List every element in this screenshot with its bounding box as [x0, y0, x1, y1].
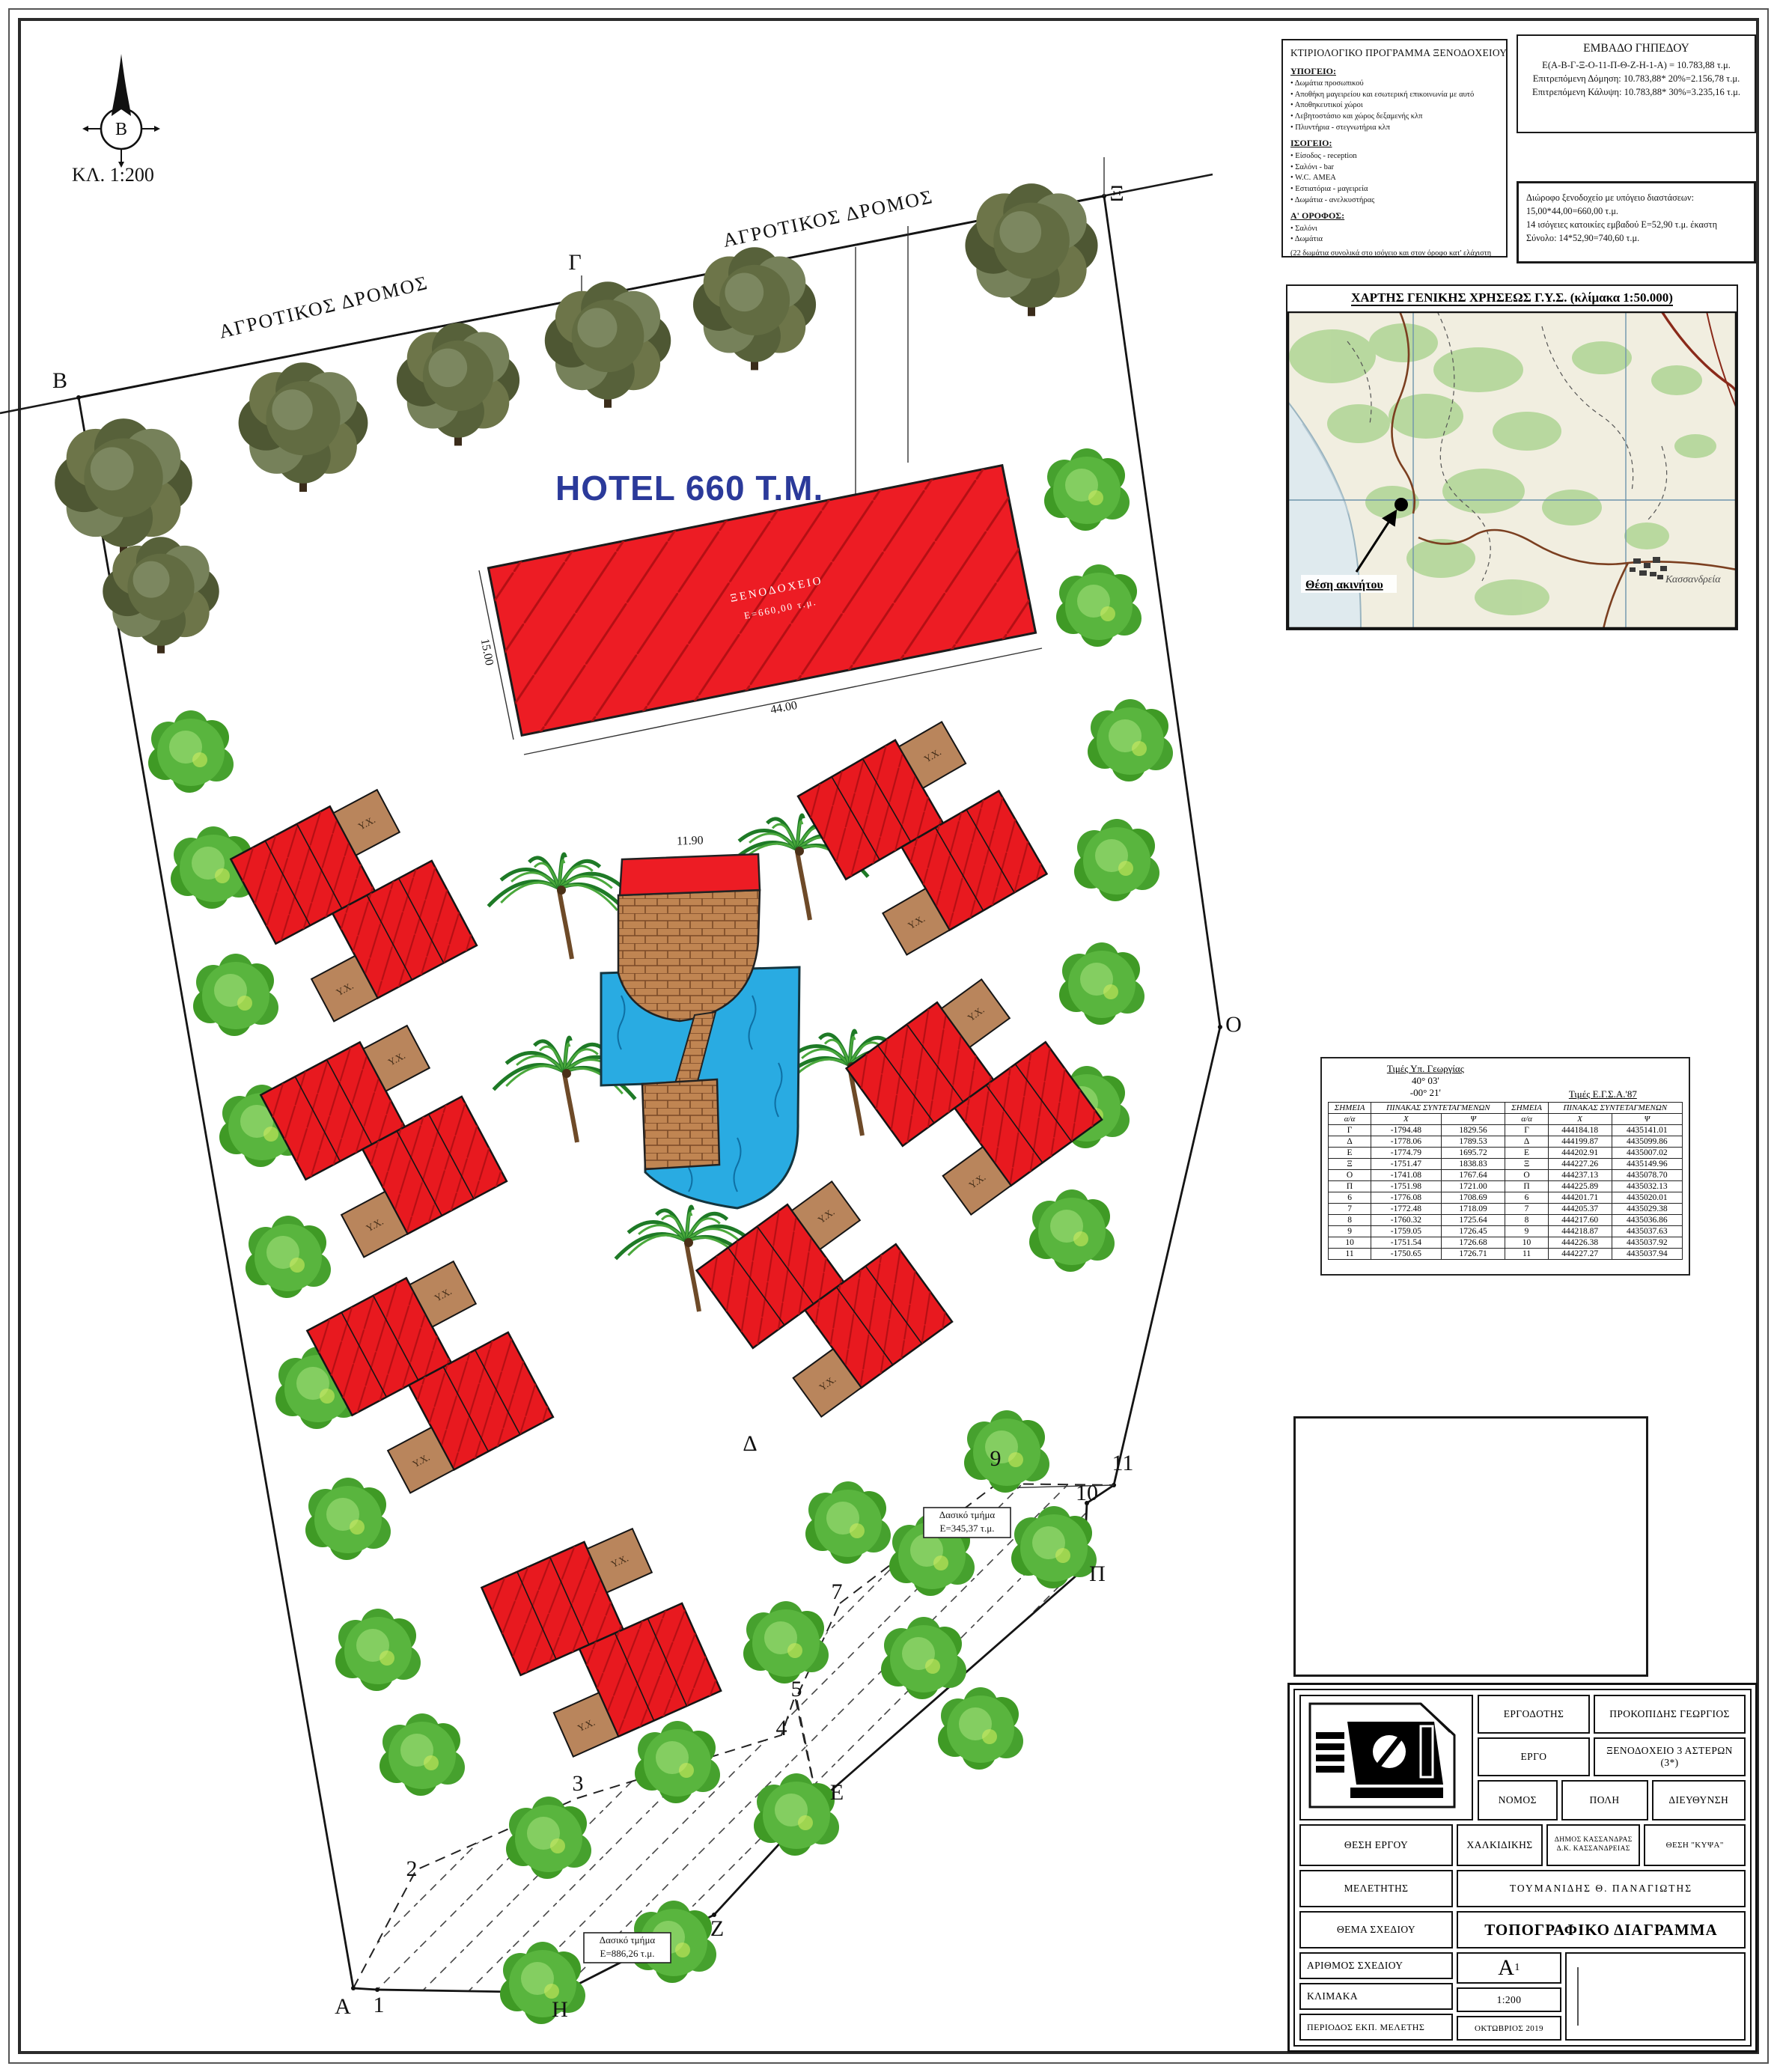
signature-box	[1565, 1952, 1746, 2041]
map-site-label: Θέση ακινήτου	[1305, 579, 1383, 591]
build-line: Σύνολο: 14*52,90=740,60 τ.μ.	[1526, 233, 1746, 244]
address-header: ΔΙΕΥΘΥΝΣΗ	[1652, 1780, 1746, 1820]
bungalow-pair: Υ.Χ.Υ.Χ.	[307, 1248, 553, 1500]
program-item: • Είσοδος - reception	[1290, 151, 1499, 162]
coords-header-left: Τιμές Υπ. Γεωργίας	[1328, 1063, 1523, 1075]
bush-icon	[743, 1601, 829, 1683]
boundary-point-label: 4	[776, 1716, 787, 1740]
subject-value: ΤΟΠΟΓΡΑΦΙΚΟ ΔΙΑΓΡΑΜΜΑ	[1457, 1911, 1746, 1948]
period-value: ΟΚΤΩΒΡΙΟΣ 2019	[1457, 2016, 1561, 2041]
coord-row: Ξ-1751.471838.83Ξ444227.264435149.96	[1329, 1159, 1683, 1170]
building-summary-box: Διώροφο ξενοδοχείο με υπόγειο διαστάσεων…	[1517, 181, 1756, 263]
col-y: Ψ	[1441, 1114, 1505, 1125]
area-line: Επιτρεπόμενη Κάλυψη: 10.783,88* 30%=3.23…	[1523, 87, 1750, 98]
boundary-point-label: 10	[1076, 1481, 1098, 1505]
pool-deck-square	[642, 1079, 719, 1169]
bush-icon	[1029, 1189, 1115, 1272]
program-item: • Αποθηκευτικοί χώροι	[1290, 100, 1499, 111]
program-note: (22 δωμάτια συνολικά στο ισόγειο και στο…	[1290, 249, 1499, 258]
col-table: ΠΙΝΑΚΑΣ ΣΥΝΤΕΤΑΓΜΕΝΩΝ	[1548, 1103, 1682, 1114]
coord-row: Γ-1794.481829.56Γ444184.184435141.01	[1329, 1125, 1683, 1136]
bush-icon	[805, 1481, 891, 1564]
boundary-point-label: 7	[832, 1579, 843, 1604]
location-address: ΘΕΣΗ "ΚΥΨΑ"	[1644, 1824, 1746, 1866]
tree-icon	[545, 281, 671, 407]
col-x: X	[1548, 1114, 1612, 1125]
location-label: ΘΕΣΗ ΕΡΓΟΥ	[1299, 1824, 1453, 1866]
area-line: Ε(Α-Β-Γ-Ξ-Ο-11-Π-Θ-Ζ-Η-1-Α) = 10.783,88 …	[1523, 60, 1750, 71]
map-town-label: Κασσανδρεία	[1665, 574, 1721, 585]
boundary-point-label: Γ	[568, 250, 581, 275]
site-location-dot	[1395, 498, 1408, 511]
bush-icon	[1056, 564, 1142, 647]
bush-icon	[148, 710, 234, 793]
period-label: ΠΕΡΙΟΔΟΣ ΕΚΠ. ΜΕΛΕΤΗΣ	[1299, 2014, 1453, 2041]
program-item: • Δωμάτια	[1290, 234, 1499, 245]
project-label: ΕΡΓΟ	[1478, 1737, 1590, 1776]
program-item: • Δωμάτια - ανελκυστήρας	[1290, 195, 1499, 206]
program-title: ΚΤΙΡΙΟΛΟΓΙΚΟ ΠΡΟΓΡΑΜΜΑ ΞΕΝΟΔΟΧΕΙΟΥ	[1290, 46, 1499, 60]
employer-value: ΠΡΟΚΟΠΙΔΗΣ ΓΕΩΡΓΙΟΣ	[1594, 1695, 1746, 1734]
map-title: ΧΑΡΤΗΣ ΓΕΝΙΚΗΣ ΧΡΗΣΕΩΣ Γ.Υ.Σ. (κλίμακα 1…	[1287, 286, 1737, 311]
col-aa: α/α	[1505, 1114, 1548, 1125]
plot-area-box: ΕΜΒΑΔΟ ΓΗΠΕΔΟΥ Ε(Α-Β-Γ-Ξ-Ο-11-Π-Θ-Ζ-Η-1-…	[1517, 34, 1756, 133]
coord-row: 9-1759.051726.459444218.874435037.63	[1329, 1226, 1683, 1237]
program-heading: Α' ΟΡΟΦΟΣ:	[1290, 210, 1499, 222]
program-item: • Σαλόνι	[1290, 224, 1499, 234]
coord-row: 8-1760.321725.648444217.604435036.86	[1329, 1215, 1683, 1226]
boundary-point-label: Β	[52, 368, 67, 393]
tree-icon	[239, 362, 368, 492]
program-list-floor: • Σαλόνι• Δωμάτια	[1290, 224, 1499, 245]
topo-map: Κασσανδρεία Θέση ακινήτου	[1287, 311, 1737, 629]
plan-scale-label: ΚΛ. 1:200	[72, 164, 154, 186]
program-item: • W.C. ΑΜΕΑ	[1290, 173, 1499, 183]
coordinates-table-box: Τιμές Υπ. Γεωργίας 40° 03' -00° 21' Τιμέ…	[1320, 1057, 1690, 1276]
svg-text:Ε=886,26 τ.μ.: Ε=886,26 τ.μ.	[600, 1948, 655, 1959]
program-item: • Δωμάτια προσωπικού	[1290, 79, 1499, 89]
drawing-number: Α1	[1457, 1952, 1561, 1984]
drawing-sheet: ΑΓΡΟΤΙΚΟΣ ΔΡΟΜΟΣ ΑΓΡΟΤΙΚΟΣ ΔΡΟΜΟΣ Υ.Χ.Υ.…	[0, 0, 1777, 2072]
boundary-point-label: Α	[335, 1994, 351, 2019]
palm-tree-icon	[488, 854, 630, 959]
boundary-vertex	[351, 1986, 356, 1990]
hotel-label: HOTEL 660 T.M.	[555, 469, 823, 508]
svg-text:Ε=345,37 τ.μ.: Ε=345,37 τ.μ.	[940, 1523, 995, 1534]
poli-header: ΠΟΛΗ	[1561, 1780, 1648, 1820]
road-label-2: ΑΓΡΟΤΙΚΟΣ ΔΡΟΜΟΣ	[721, 186, 935, 252]
boundary-point-label: 3	[573, 1771, 584, 1796]
location-map-inset: ΧΑΡΤΗΣ ΓΕΝΙΚΗΣ ΧΡΗΣΕΩΣ Γ.Υ.Σ. (κλίμακα 1…	[1286, 284, 1738, 630]
boundary-point-label: Ζ	[710, 1916, 724, 1941]
col-table: ΠΙΝΑΚΑΣ ΣΥΝΤΕΤΑΓΜΕΝΩΝ	[1371, 1103, 1505, 1114]
boundary-point-label: Π	[1089, 1561, 1106, 1586]
boundary-vertex	[1218, 1025, 1222, 1029]
boundary-point-label: 2	[406, 1856, 418, 1881]
designer-value: ΤΟΥΜΑΝΙΔΗΣ Θ. ΠΑΝΑΓΙΩΤΗΣ	[1457, 1870, 1746, 1907]
program-heading: ΙΣΟΓΕΙΟ:	[1290, 138, 1499, 150]
coords-header-right: Τιμές Ε.Γ.Σ.Α.'87	[1569, 1088, 1637, 1100]
boundary-vertex	[76, 395, 81, 400]
bush-icon	[380, 1713, 465, 1796]
coord-row: 6-1776.081708.696444201.714435020.01	[1329, 1192, 1683, 1204]
bush-icon	[964, 1410, 1049, 1493]
boundary-point-label: 5	[791, 1677, 802, 1701]
col-points: ΣΗΜΕΙΑ	[1505, 1103, 1548, 1114]
compass-letter: Β	[115, 120, 127, 139]
scale-value: 1:200	[1457, 1987, 1561, 2012]
tree-icon	[55, 418, 192, 556]
col-x: X	[1371, 1114, 1442, 1125]
build-line: 14 ισόγειες κατοικίες εμβαδού Ε=52,90 τ.…	[1526, 219, 1746, 231]
nomos-header: ΝΟΜΟΣ	[1478, 1780, 1558, 1820]
bush-icon	[305, 1478, 391, 1560]
building-program-box: ΚΤΙΡΙΟΛΟΓΙΚΟ ΠΡΟΓΡΑΜΜΑ ΞΕΝΟΔΟΧΕΙΟΥ ΥΠΟΓΕ…	[1281, 39, 1508, 258]
coords-lat: 40° 03'	[1328, 1075, 1523, 1087]
hotel-building: ΞΕΝΟΔΟΧΕΙΟ Ε=660,00 τ.μ. HOTEL 660 T.M.	[488, 466, 1035, 736]
pool-complex	[601, 854, 799, 1208]
firm-logo	[1299, 1695, 1473, 1820]
coord-row: 10-1751.541726.6810444226.384435037.92	[1329, 1237, 1683, 1249]
bush-icon	[335, 1609, 421, 1691]
svg-text:Δασικό τμήμα: Δασικό τμήμα	[939, 1509, 996, 1520]
bush-icon	[246, 1216, 331, 1298]
coord-row: 11-1750.651726.7111444227.274435037.94	[1329, 1249, 1683, 1260]
coord-row: Ο-1741.081767.64Ο444237.134435078.70	[1329, 1170, 1683, 1181]
revision-box	[1293, 1416, 1648, 1677]
boundary-point-label: Ε	[830, 1780, 844, 1805]
bush-icon	[193, 954, 278, 1036]
forest-label: Δασικό τμήμαΕ=345,37 τ.μ.	[924, 1508, 1011, 1538]
bush-icon	[1074, 819, 1159, 901]
coords-lon: -00° 21'	[1328, 1087, 1523, 1099]
program-heading: ΥΠΟΓΕΙΟ:	[1290, 66, 1499, 78]
boundary-point-label: Ο	[1225, 1012, 1242, 1037]
coord-row: 7-1772.481718.097444205.374435029.38	[1329, 1204, 1683, 1215]
program-item: • Αποθήκη μαγειρείου και εσωτερική επικο…	[1290, 90, 1499, 100]
tree-icon	[693, 247, 816, 370]
col-points: ΣΗΜΕΙΑ	[1329, 1103, 1371, 1114]
boundary-vertex	[375, 1987, 380, 1992]
number-label: ΑΡΙΘΜΟΣ ΣΧΕΔΙΟΥ	[1299, 1952, 1453, 1979]
compass-icon: Β	[82, 54, 160, 168]
subject-label: ΘΕΜΑ ΣΧΕΔΙΟΥ	[1299, 1911, 1453, 1948]
road-label-1: ΑΓΡΟΤΙΚΟΣ ΔΡΟΜΟΣ	[217, 272, 430, 343]
tree-icon	[965, 183, 1097, 316]
boundary-point-label: 9	[990, 1446, 1002, 1471]
dimension-label: 15.00	[478, 638, 496, 667]
title-block: ΕΡΓΟΔΟΤΗΣ ΠΡΟΚΟΠΙΔΗΣ ΓΕΩΡΓΙΟΣ ΕΡΓΟ ΞΕΝΟΔ…	[1287, 1683, 1758, 2053]
coordinates-table: ΣΗΜΕΙΑ ΠΙΝΑΚΑΣ ΣΥΝΤΕΤΑΓΜΕΝΩΝ ΣΗΜΕΙΑ ΠΙΝΑ…	[1328, 1102, 1683, 1260]
program-list-basement: • Δωμάτια προσωπικού• Αποθήκη μαγειρείου…	[1290, 79, 1499, 132]
boundary-point-label: Ξ	[1109, 181, 1124, 206]
bush-icon	[938, 1687, 1023, 1770]
coord-row: Ε-1774.791695.72Ε444202.914435007.02	[1329, 1148, 1683, 1159]
employer-label: ΕΡΓΟΔΟΤΗΣ	[1478, 1695, 1590, 1734]
bush-icon	[1059, 942, 1144, 1025]
svg-text:Δασικό τμήμα: Δασικό τμήμα	[600, 1934, 656, 1945]
coord-row: Δ-1778.061789.53Δ444199.874435099.86	[1329, 1136, 1683, 1148]
boundary-point-label: 11	[1112, 1451, 1134, 1475]
bungalow-pair: Υ.Χ.Υ.Χ.	[798, 708, 1046, 963]
pool-bar-building	[620, 854, 760, 895]
build-line: 15,00*44,00=660,00 τ.μ.	[1526, 206, 1746, 217]
designer-label: ΜΕΛΕΤΗΤΗΣ	[1299, 1870, 1453, 1907]
boundary-point-label: Δ	[743, 1431, 757, 1456]
coord-row: Π-1751.981721.00Π444225.894435032.13	[1329, 1181, 1683, 1192]
bush-icon	[1088, 699, 1173, 781]
bush-icon	[1044, 448, 1130, 531]
tree-icon	[397, 323, 519, 445]
boundary-point-label: Η	[552, 1997, 568, 2022]
forest-label: Δασικό τμήμαΕ=886,26 τ.μ.	[584, 1933, 671, 1963]
dimension-label: 44.00	[769, 699, 799, 717]
col-y: Ψ	[1612, 1114, 1682, 1125]
program-item: • Εστιατόρια - μαγειρεία	[1290, 184, 1499, 195]
dimension-label: 11.90	[677, 834, 704, 847]
program-list-ground: • Είσοδος - reception• Σαλόνι - bar• W.C…	[1290, 151, 1499, 205]
project-value: ΞΕΝΟΔΟΧΕΙΟ 3 ΑΣΤΕΡΩΝ (3*)	[1594, 1737, 1746, 1776]
program-item: • Πλυντήρια - στεγνωτήρια κλπ	[1290, 123, 1499, 133]
boundary-point-label: 1	[374, 1993, 385, 2017]
area-title: ΕΜΒΑΔΟ ΓΗΠΕΔΟΥ	[1523, 42, 1750, 55]
col-aa: α/α	[1329, 1114, 1371, 1125]
location-nomos: ΧΑΛΚΙΔΙΚΗΣ	[1457, 1824, 1543, 1866]
program-item: • Σαλόνι - bar	[1290, 162, 1499, 173]
build-line: Διώροφο ξενοδοχείο με υπόγειο διαστάσεων…	[1526, 192, 1746, 204]
area-line: Επιτρεπόμενη Δόμηση: 10.783,88* 20%=2.15…	[1523, 73, 1750, 85]
scale-label: ΚΛΙΜΑΚΑ	[1299, 1983, 1453, 2010]
location-city: ΔΗΜΟΣ ΚΑΣΣΑΝΔΡΑΣ Δ.Κ. ΚΑΣΣΑΝΔΡΕΙΑΣ	[1546, 1824, 1640, 1866]
program-item: • Λεβητοστάσιο και χώρος δεξαμενής κλπ	[1290, 112, 1499, 122]
